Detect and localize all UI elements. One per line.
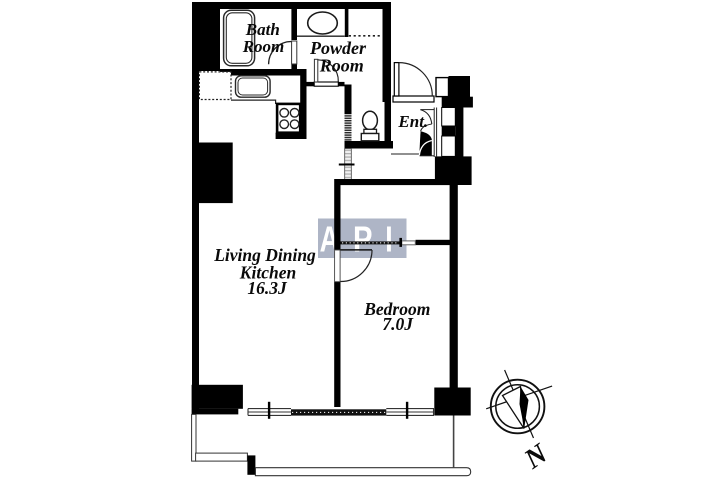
svg-text:P: P	[353, 218, 373, 259]
svg-text:I: I	[385, 218, 392, 259]
svg-text:Room: Room	[319, 56, 364, 76]
svg-text:16.3J: 16.3J	[247, 278, 288, 298]
svg-text:Ent.: Ent.	[397, 112, 428, 131]
svg-text:Room: Room	[242, 37, 285, 56]
svg-text:7.0J: 7.0J	[382, 314, 414, 334]
